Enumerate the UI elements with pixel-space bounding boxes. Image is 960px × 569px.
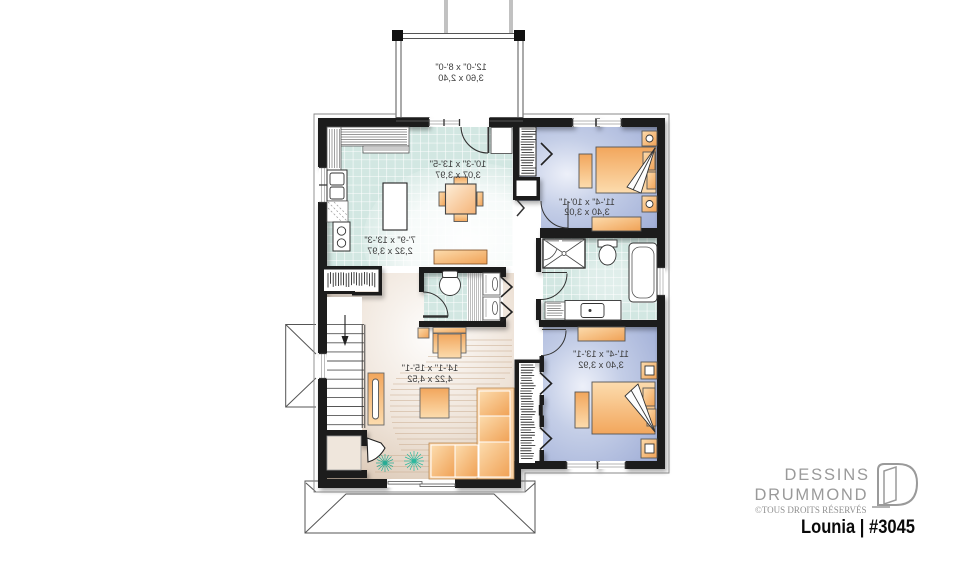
svg-text:10'-3" x 13'-5": 10'-3" x 13'-5" [430, 159, 487, 169]
svg-text:DESSINS: DESSINS [785, 466, 870, 484]
svg-text:©TOUS DROITS RÉSERVÉS: ©TOUS DROITS RÉSERVÉS [755, 505, 867, 515]
svg-text:2,32 x 3,97: 2,32 x 3,97 [367, 246, 412, 256]
svg-text:3,40 x 3,92: 3,40 x 3,92 [578, 360, 623, 370]
svg-text:3,60 x 2,40: 3,60 x 2,40 [438, 73, 483, 83]
svg-text:12'-0" x 8'-0": 12'-0" x 8'-0" [435, 62, 486, 72]
svg-text:3,40 x 3,02: 3,40 x 3,02 [564, 207, 609, 217]
svg-text:14'-1" x 15'-1": 14'-1" x 15'-1" [402, 363, 459, 373]
svg-text:11'-4" x 10'-1": 11'-4" x 10'-1" [559, 197, 615, 207]
svg-text:11'-4" x 13'-1": 11'-4" x 13'-1" [573, 349, 629, 359]
svg-text:Lounia | #3045: Lounia | #3045 [801, 516, 915, 538]
svg-text:3,07 x 3,97: 3,07 x 3,97 [435, 170, 480, 180]
svg-text:DRUMMOND: DRUMMOND [755, 486, 868, 504]
svg-text:7'-9" x 13'-3": 7'-9" x 13'-3" [364, 235, 415, 245]
svg-text:4,22 x 4,52: 4,22 x 4,52 [407, 374, 452, 384]
